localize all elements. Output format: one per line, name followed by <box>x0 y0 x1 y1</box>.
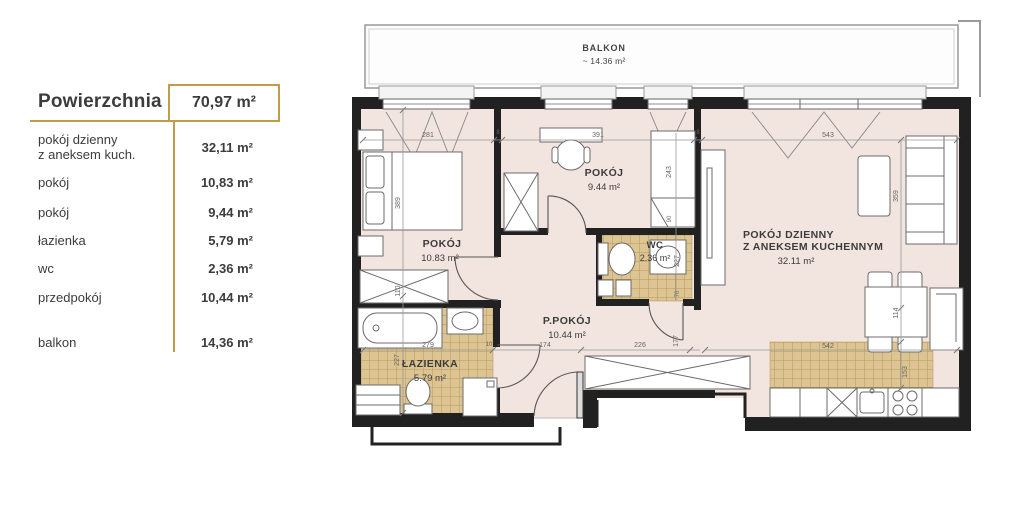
dim-174: 174 <box>539 342 551 349</box>
toilet <box>598 243 635 275</box>
dim-70: 70 <box>675 290 681 297</box>
room-hall-area: 10.44 m² <box>548 330 586 341</box>
kitchen-cabinets <box>770 388 959 417</box>
cabinet <box>616 280 631 296</box>
bath-cabinet <box>356 385 400 415</box>
tv-unit <box>701 150 725 285</box>
double-bed <box>363 152 462 230</box>
hall-wardrobe <box>585 356 750 389</box>
balcony-name: BALKON <box>582 43 625 53</box>
dim-10: 10 <box>486 342 493 348</box>
room-bedroom-area: 10.83 m² <box>421 253 459 264</box>
dim-227: 227 <box>674 255 681 267</box>
window-room2-left <box>541 86 616 109</box>
room-wc-name: WC <box>647 240 664 251</box>
nightstand <box>358 236 383 256</box>
dim-153: 153 <box>902 366 909 378</box>
dim-243: 243 <box>666 166 673 178</box>
dim-177: 177 <box>673 335 680 347</box>
dim-281: 281 <box>422 132 434 139</box>
bath-sink <box>447 308 483 334</box>
exterior-recess <box>597 398 745 418</box>
dim-391: 391 <box>592 132 604 139</box>
room-living-area: 32.11 m² <box>778 256 815 267</box>
single-bed <box>651 131 695 227</box>
wardrobe <box>504 173 538 231</box>
cabinet <box>598 280 613 296</box>
floorplan-page: Powierzchnia 70,97 m² pokój dzienny z an… <box>0 0 1024 527</box>
bedroom-furniture <box>358 130 462 303</box>
wardrobe <box>360 270 448 303</box>
dim-542: 542 <box>822 343 834 350</box>
room-bath-area: 5.79 m² <box>414 373 446 384</box>
room-bath-name: ŁAZIENKA <box>402 358 458 370</box>
dim-227: 227 <box>394 354 401 366</box>
dim-543: 543 <box>822 132 834 139</box>
room-2-area: 9.44 m² <box>588 182 620 193</box>
washing-machine <box>463 378 497 416</box>
dim-110: 110 <box>395 285 402 296</box>
dim-389: 389 <box>395 197 402 209</box>
dim-359: 359 <box>893 190 900 202</box>
room-2-name: POKÓJ <box>585 166 624 179</box>
room-bedroom-name: POKÓJ <box>423 237 462 250</box>
fridge <box>930 288 963 350</box>
sofa <box>906 136 957 244</box>
coffee-table <box>858 156 890 216</box>
dim-114: 114 <box>893 307 900 318</box>
balcony-area: ~ 14.36 m² <box>583 56 626 66</box>
room-living-name-1: POKÓJ DZIENNY <box>743 228 834 241</box>
dim-90: 90 <box>667 215 673 222</box>
floorplan-drawing: BALKON ~ 14.36 m² <box>0 0 1024 527</box>
room-living-name-2: Z ANEKSEM KUCHENNYM <box>743 241 883 253</box>
room-wc-area: 2.36 m² <box>640 253 671 263</box>
dim-279: 279 <box>422 342 434 349</box>
room-hall-name: P.POKÓJ <box>543 314 591 327</box>
dim-226: 226 <box>634 342 646 349</box>
